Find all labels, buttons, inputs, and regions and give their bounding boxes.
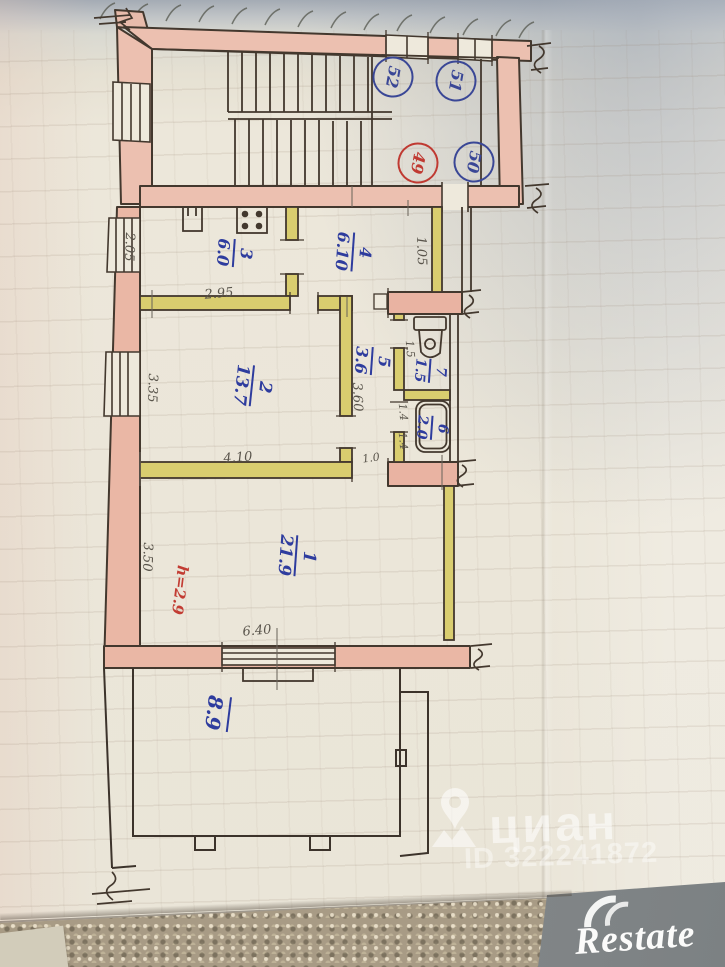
restate-logo-text: Restate	[573, 912, 697, 964]
break-bottom-left	[92, 872, 150, 904]
dim-room1-length: 6.40	[242, 622, 272, 639]
partition-wc-left-a	[394, 314, 404, 320]
room-number: 1	[294, 535, 319, 578]
dim-room2-length: 4.10	[223, 450, 253, 467]
dim-room2-width: 3.35	[144, 373, 160, 402]
window-sill	[243, 668, 313, 681]
dim-corridor-length: 3.60	[349, 382, 365, 411]
room-number: 3	[232, 239, 255, 268]
kitchen-sink-icon	[183, 207, 202, 231]
partition-room2-corridor-b	[340, 448, 352, 462]
room-label-hall: 4 6.10	[332, 231, 374, 273]
room-label-wc: 7 1.5	[412, 358, 449, 385]
room-area: 21.9	[274, 534, 297, 577]
dim-wc-length: 1.5	[403, 340, 417, 359]
dim-bath-length: 1.4	[396, 432, 410, 451]
dim-kitchen-length: 2.95	[204, 285, 234, 302]
dim-room1-width: 3.50	[139, 542, 155, 571]
window-room1	[222, 648, 335, 665]
floor-plan-photo: 52 51 49 50 3 6.0 4 6.10 5 3.6 7 1.5 6 2…	[0, 0, 725, 967]
wall-entry-hall	[388, 292, 462, 314]
windows	[104, 30, 492, 681]
wall-apartment-left	[104, 207, 140, 668]
veranda-outline	[104, 668, 428, 868]
apartment-number-label: 51	[445, 68, 468, 93]
room-number: 2	[249, 365, 275, 408]
room-number: 6	[430, 416, 450, 442]
room-area: 3.6	[351, 346, 372, 375]
room-number: 7	[428, 359, 448, 385]
apartment-number-label: 50	[463, 149, 486, 174]
entrance-door-opening	[442, 182, 468, 212]
toilet-icon	[414, 317, 446, 357]
room-area: 1.5	[412, 358, 430, 383]
room-area: 6.10	[332, 231, 353, 271]
room-number: 5	[370, 347, 393, 376]
door-leaf	[374, 294, 387, 309]
paper-corner-flap	[0, 926, 68, 967]
dim-kitchen-width: 2.05	[121, 232, 137, 261]
break-entry-right	[462, 290, 481, 318]
kitchen-stove-icon	[237, 207, 267, 233]
partition-wc-left-b	[394, 348, 404, 390]
room-label-room1: 1 21.9	[274, 534, 318, 578]
apartment-number-label: 49	[407, 150, 430, 175]
partition-kitchen-hall-b	[286, 274, 298, 296]
partition-kitchen-hall-a	[286, 207, 298, 240]
room-label-bathroom: 6 2.0	[414, 415, 451, 442]
partition-room1-right	[444, 486, 454, 640]
dim-door-width: 1.0	[361, 450, 380, 465]
room-label-corridor: 5 3.6	[351, 346, 392, 377]
room-label-room2: 2 13.7	[229, 363, 275, 409]
floor-plan-drawing	[0, 0, 725, 967]
window-stairwell	[113, 82, 150, 142]
room-area: 8.9	[200, 694, 232, 732]
room-label-kitchen: 3 6.0	[213, 238, 254, 269]
break-room1-right-bottom	[471, 644, 492, 670]
wc-right-line	[450, 314, 458, 462]
room-number: 4	[351, 232, 374, 272]
room-area: 2.0	[414, 415, 432, 440]
wall-stair-right	[497, 57, 523, 204]
corridor-right-line	[462, 207, 471, 292]
apartment-number-label: 52	[382, 64, 405, 89]
veranda-area-label: 8.9	[200, 694, 232, 732]
break-right-stair	[525, 184, 549, 213]
restate-logo: Restate	[566, 888, 725, 967]
dim-hall-width: 1.05	[413, 236, 429, 265]
exterior-walls	[104, 10, 531, 668]
partition-thin-lines	[450, 207, 471, 462]
partition-wc-bath	[404, 390, 450, 400]
dim-bath-width: 1.4	[396, 403, 410, 422]
partition-entry-corridor	[432, 207, 442, 292]
window-room2	[104, 352, 140, 416]
room-area: 6.0	[213, 238, 234, 267]
wall-room1-top-right	[388, 462, 458, 486]
